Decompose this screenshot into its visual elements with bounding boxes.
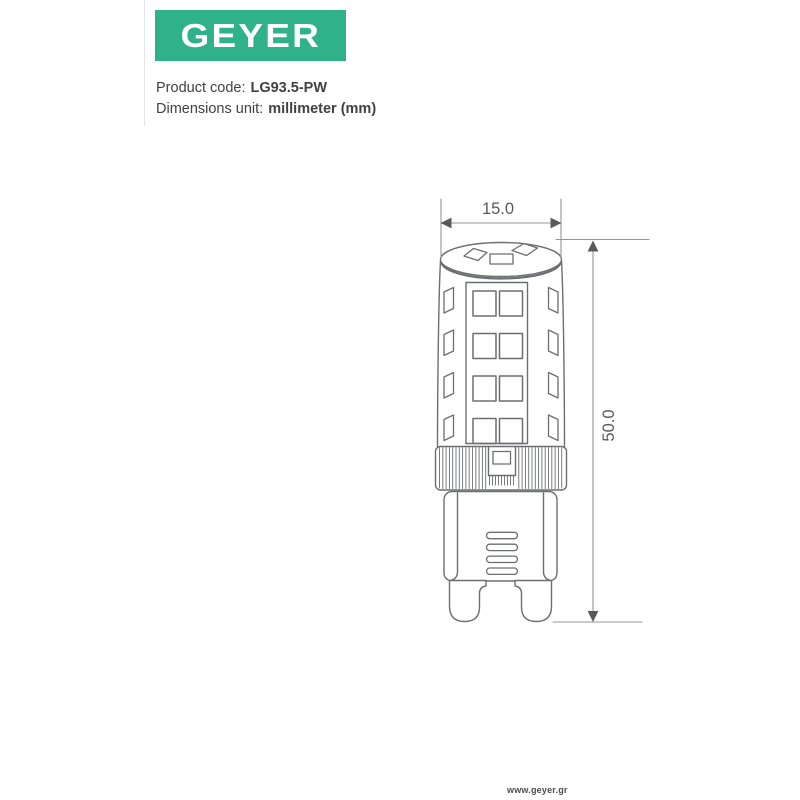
bulb-top-ellipse: [441, 243, 562, 277]
top-led-chips: [464, 244, 538, 265]
g9-base: [444, 492, 557, 622]
collar-notch: [489, 447, 516, 485]
width-dimension-label: 15.0: [482, 200, 514, 218]
side-led-right-column: [549, 288, 559, 441]
led-panel: [444, 283, 558, 444]
side-led-left-column: [444, 288, 454, 441]
ribbed-collar: [436, 447, 567, 491]
bulb-technical-drawing: 15.0 50.0: [0, 0, 800, 800]
bulb-outline: [438, 243, 565, 447]
g9-pins: [450, 581, 552, 622]
led-squares: [473, 291, 523, 444]
height-dimension-label: 50.0: [600, 409, 618, 441]
website-text: www.geyer.gr: [507, 785, 568, 795]
base-vent-slots: [487, 532, 518, 574]
